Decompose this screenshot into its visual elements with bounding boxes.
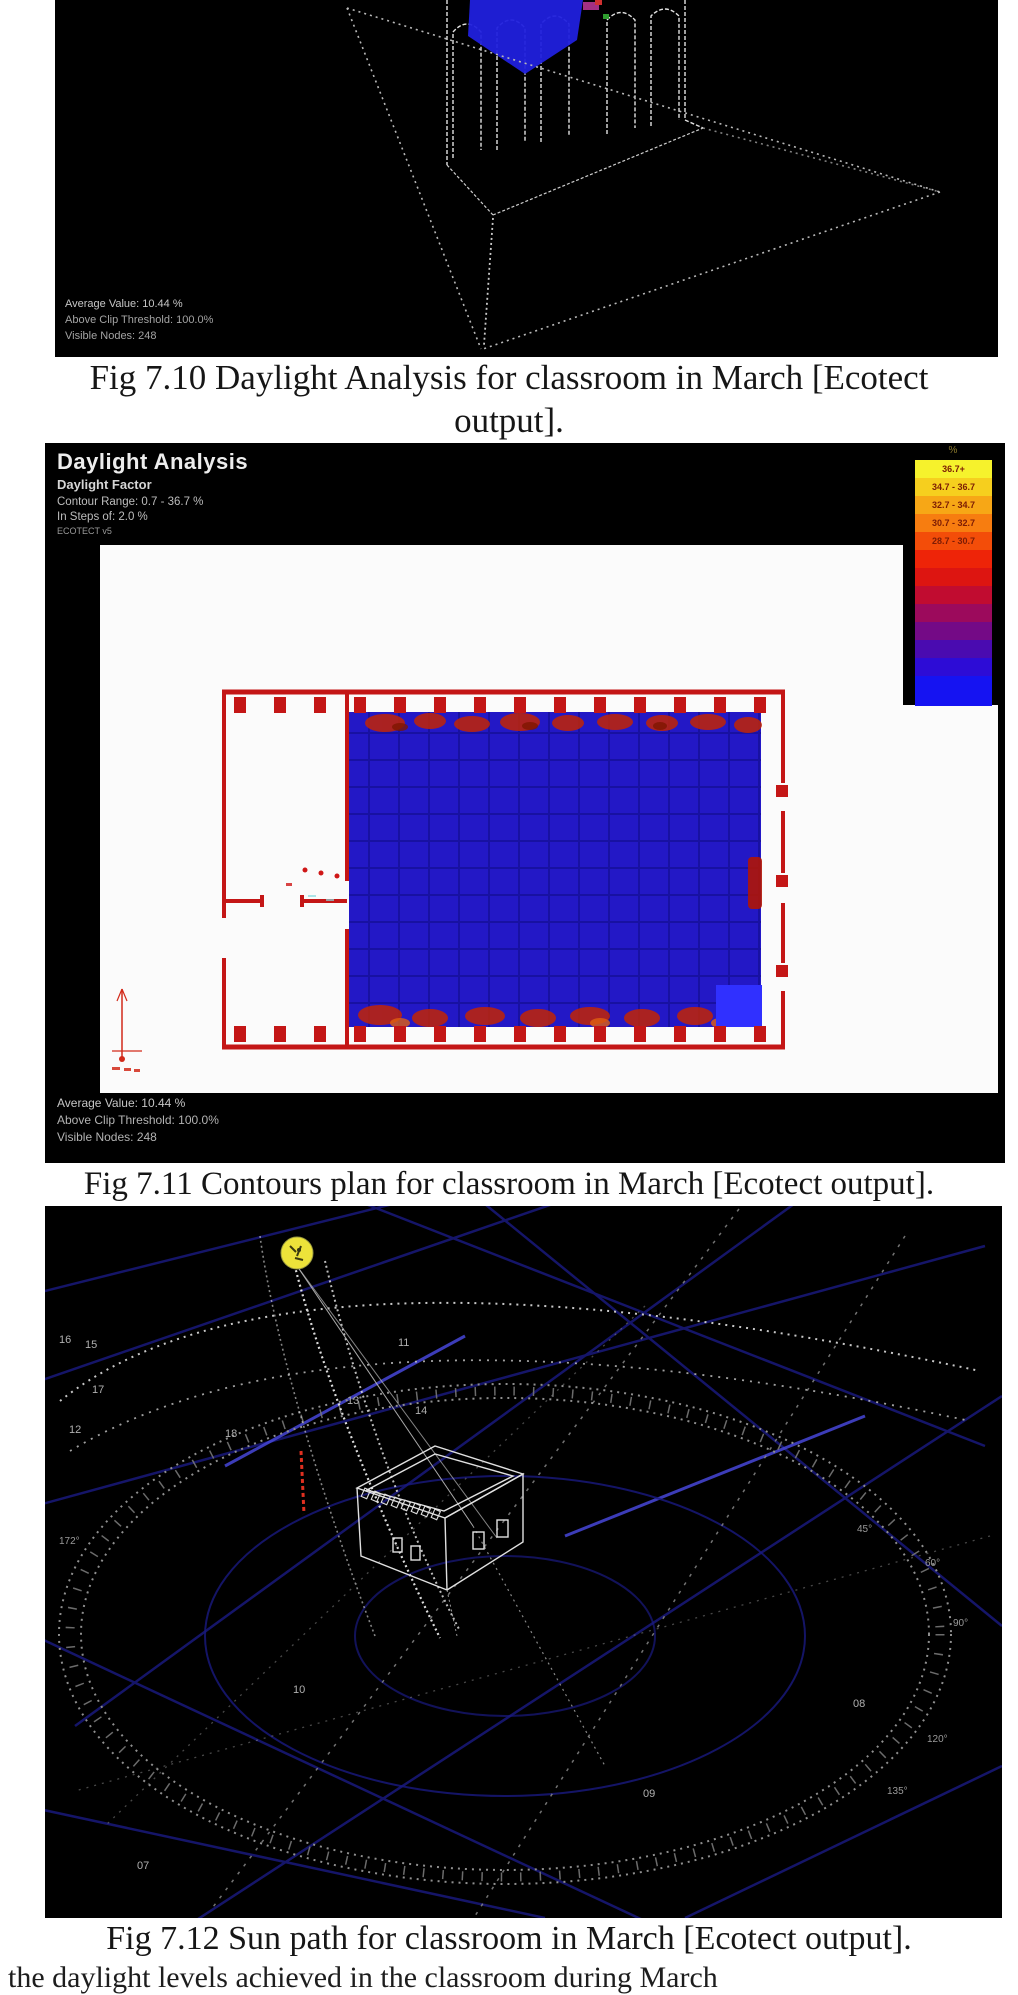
sun-hour-label: 13 xyxy=(347,1395,359,1407)
legend-band xyxy=(915,604,992,622)
legend-band xyxy=(915,550,992,568)
caption-line-1: Fig 7.10 Daylight Analysis for classroom… xyxy=(0,356,1018,399)
fig-7-10-image: Average Value: 10.44 % Above Clip Thresh… xyxy=(55,0,998,357)
fig-7-11-image: % 36.7+34.7 - 36.732.7 - 34.730.7 - 32.7… xyxy=(45,443,1005,1163)
sun-hour-label: 08 xyxy=(853,1698,865,1710)
stat-visible-nodes: Visible Nodes: 248 xyxy=(65,328,213,344)
stat-average-value: Average Value: 10.44 % xyxy=(57,1095,219,1112)
legend-band xyxy=(915,622,992,640)
legend-panel: % 36.7+34.7 - 36.732.7 - 34.730.7 - 32.7… xyxy=(903,443,1003,705)
azimuth-degree-label: 120° xyxy=(927,1734,948,1745)
contour-steps-label: In Steps of: 2.0 % xyxy=(57,511,148,523)
high-value-patch xyxy=(716,985,762,1027)
legend-band xyxy=(915,640,992,658)
plan-paper xyxy=(100,545,998,1093)
sun-hour-label: 12 xyxy=(69,1424,81,1436)
contour-range-label: Contour Range: 0.7 - 36.7 % xyxy=(57,496,203,508)
legend-band xyxy=(915,658,992,676)
analysis-title: Daylight Analysis xyxy=(57,449,248,475)
azimuth-degree-label: 90° xyxy=(953,1618,968,1629)
sun-hour-label: 16 xyxy=(59,1334,71,1346)
sunpath-labels: 16151712181314111009080745°60°90°120°135… xyxy=(45,1206,1002,1918)
fig-7-12-image: 16151712181314111009080745°60°90°120°135… xyxy=(45,1206,1002,1918)
legend-band: 28.7 - 30.7 xyxy=(915,532,992,550)
ecotect-brand-label: ECOTECT v5 xyxy=(57,526,112,536)
azimuth-degree-label: 60° xyxy=(925,1558,940,1569)
contour-floor-plan xyxy=(100,545,998,1093)
sun-hour-label: 17 xyxy=(92,1384,104,1396)
legend-unit-label: % xyxy=(903,445,1003,456)
sun-hour-label: 07 xyxy=(137,1860,149,1872)
stat-threshold: Above Clip Threshold: 100.0% xyxy=(65,312,213,328)
azimuth-degree-label: 135° xyxy=(887,1786,908,1797)
legend-band xyxy=(915,676,992,706)
stat-visible-nodes: Visible Nodes: 248 xyxy=(57,1129,219,1146)
sun-hour-label: 15 xyxy=(85,1339,97,1351)
legend-band: 36.7+ xyxy=(915,460,992,478)
stat-threshold: Above Clip Threshold: 100.0% xyxy=(57,1112,219,1129)
legend-band: 30.7 - 32.7 xyxy=(915,514,992,532)
column-row-top xyxy=(228,697,778,713)
clipped-body-text-line: the daylight levels achieved in the clas… xyxy=(8,1961,718,1995)
legend-band: 34.7 - 36.7 xyxy=(915,478,992,496)
analysis-subtitle: Daylight Factor xyxy=(57,477,152,492)
sun-hour-label: 10 xyxy=(293,1684,305,1696)
analysis-stats-overlay: Average Value: 10.44 % Above Clip Thresh… xyxy=(65,296,213,344)
fig-7-11-caption: Fig 7.11 Contours plan for classroom in … xyxy=(0,1164,1018,1204)
fig-7-10-caption: Fig 7.10 Daylight Analysis for classroom… xyxy=(0,356,1018,442)
azimuth-degree-label: 45° xyxy=(857,1524,872,1535)
fig-7-12-caption: Fig 7.12 Sun path for classroom in March… xyxy=(0,1918,1018,1960)
axis-icon xyxy=(112,989,142,1061)
legend-band: 32.7 - 34.7 xyxy=(915,496,992,514)
sun-hour-label: 14 xyxy=(415,1405,427,1417)
caption-line-2: output]. xyxy=(0,399,1018,442)
sun-hour-label: 09 xyxy=(643,1788,655,1800)
analysis-stats-overlay: Average Value: 10.44 % Above Clip Thresh… xyxy=(57,1095,219,1146)
sun-hour-label: 11 xyxy=(398,1337,409,1349)
legend-band xyxy=(915,568,992,586)
legend-band xyxy=(915,586,992,604)
column-row-bottom xyxy=(228,1026,778,1042)
sun-hour-label: 18 xyxy=(225,1428,237,1440)
azimuth-degree-label: 172° xyxy=(59,1536,80,1547)
legend-bands: 36.7+34.7 - 36.732.7 - 34.730.7 - 32.728… xyxy=(915,460,992,706)
stat-average-value: Average Value: 10.44 % xyxy=(65,296,213,312)
